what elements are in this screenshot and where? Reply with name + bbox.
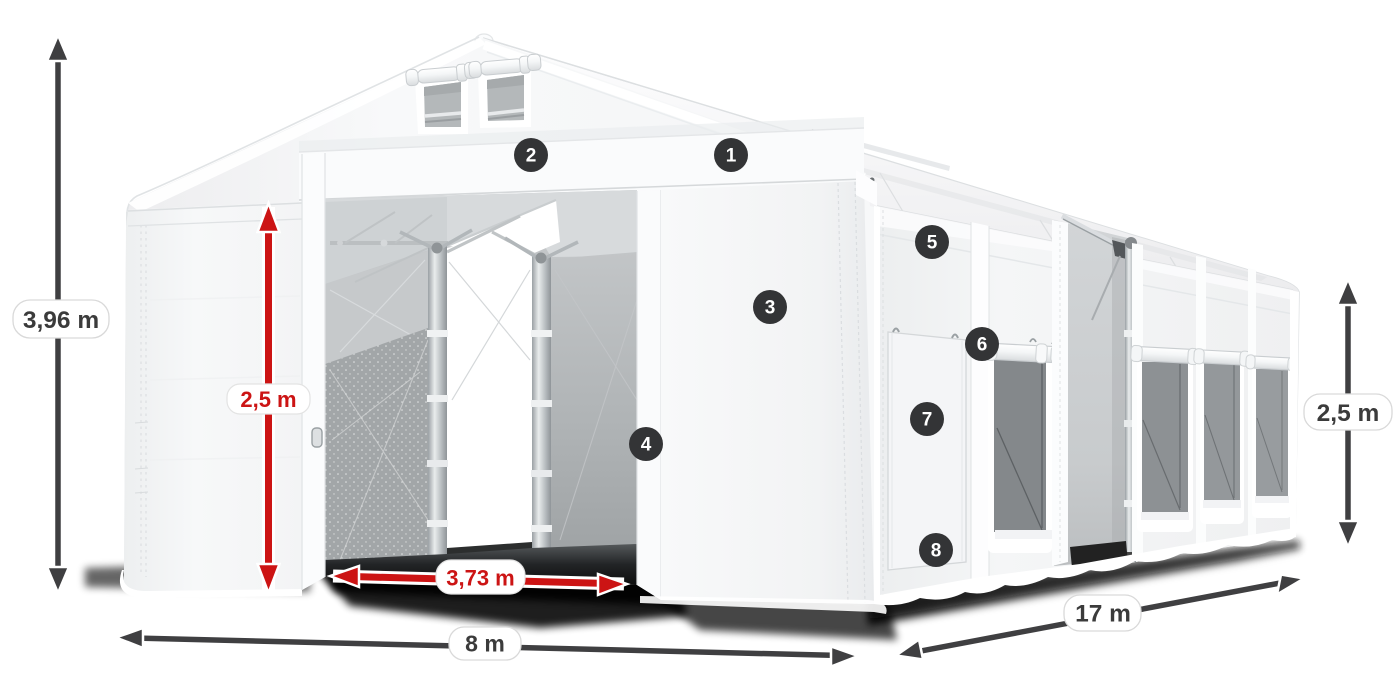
svg-text:2,5 m: 2,5 m [1317, 400, 1380, 427]
svg-text:3,73 m: 3,73 m [446, 566, 515, 591]
svg-text:3: 3 [765, 298, 776, 319]
svg-text:3,96 m: 3,96 m [23, 307, 99, 334]
svg-text:17 m: 17 m [1075, 601, 1131, 628]
svg-text:8 m: 8 m [465, 631, 505, 657]
svg-text:4: 4 [641, 435, 652, 456]
svg-text:2,5 m: 2,5 m [240, 387, 296, 412]
svg-text:8: 8 [931, 541, 942, 562]
svg-text:2: 2 [526, 146, 537, 167]
svg-text:5: 5 [927, 233, 938, 254]
svg-text:7: 7 [922, 410, 933, 431]
svg-text:6: 6 [977, 335, 988, 356]
svg-text:1: 1 [726, 146, 737, 167]
